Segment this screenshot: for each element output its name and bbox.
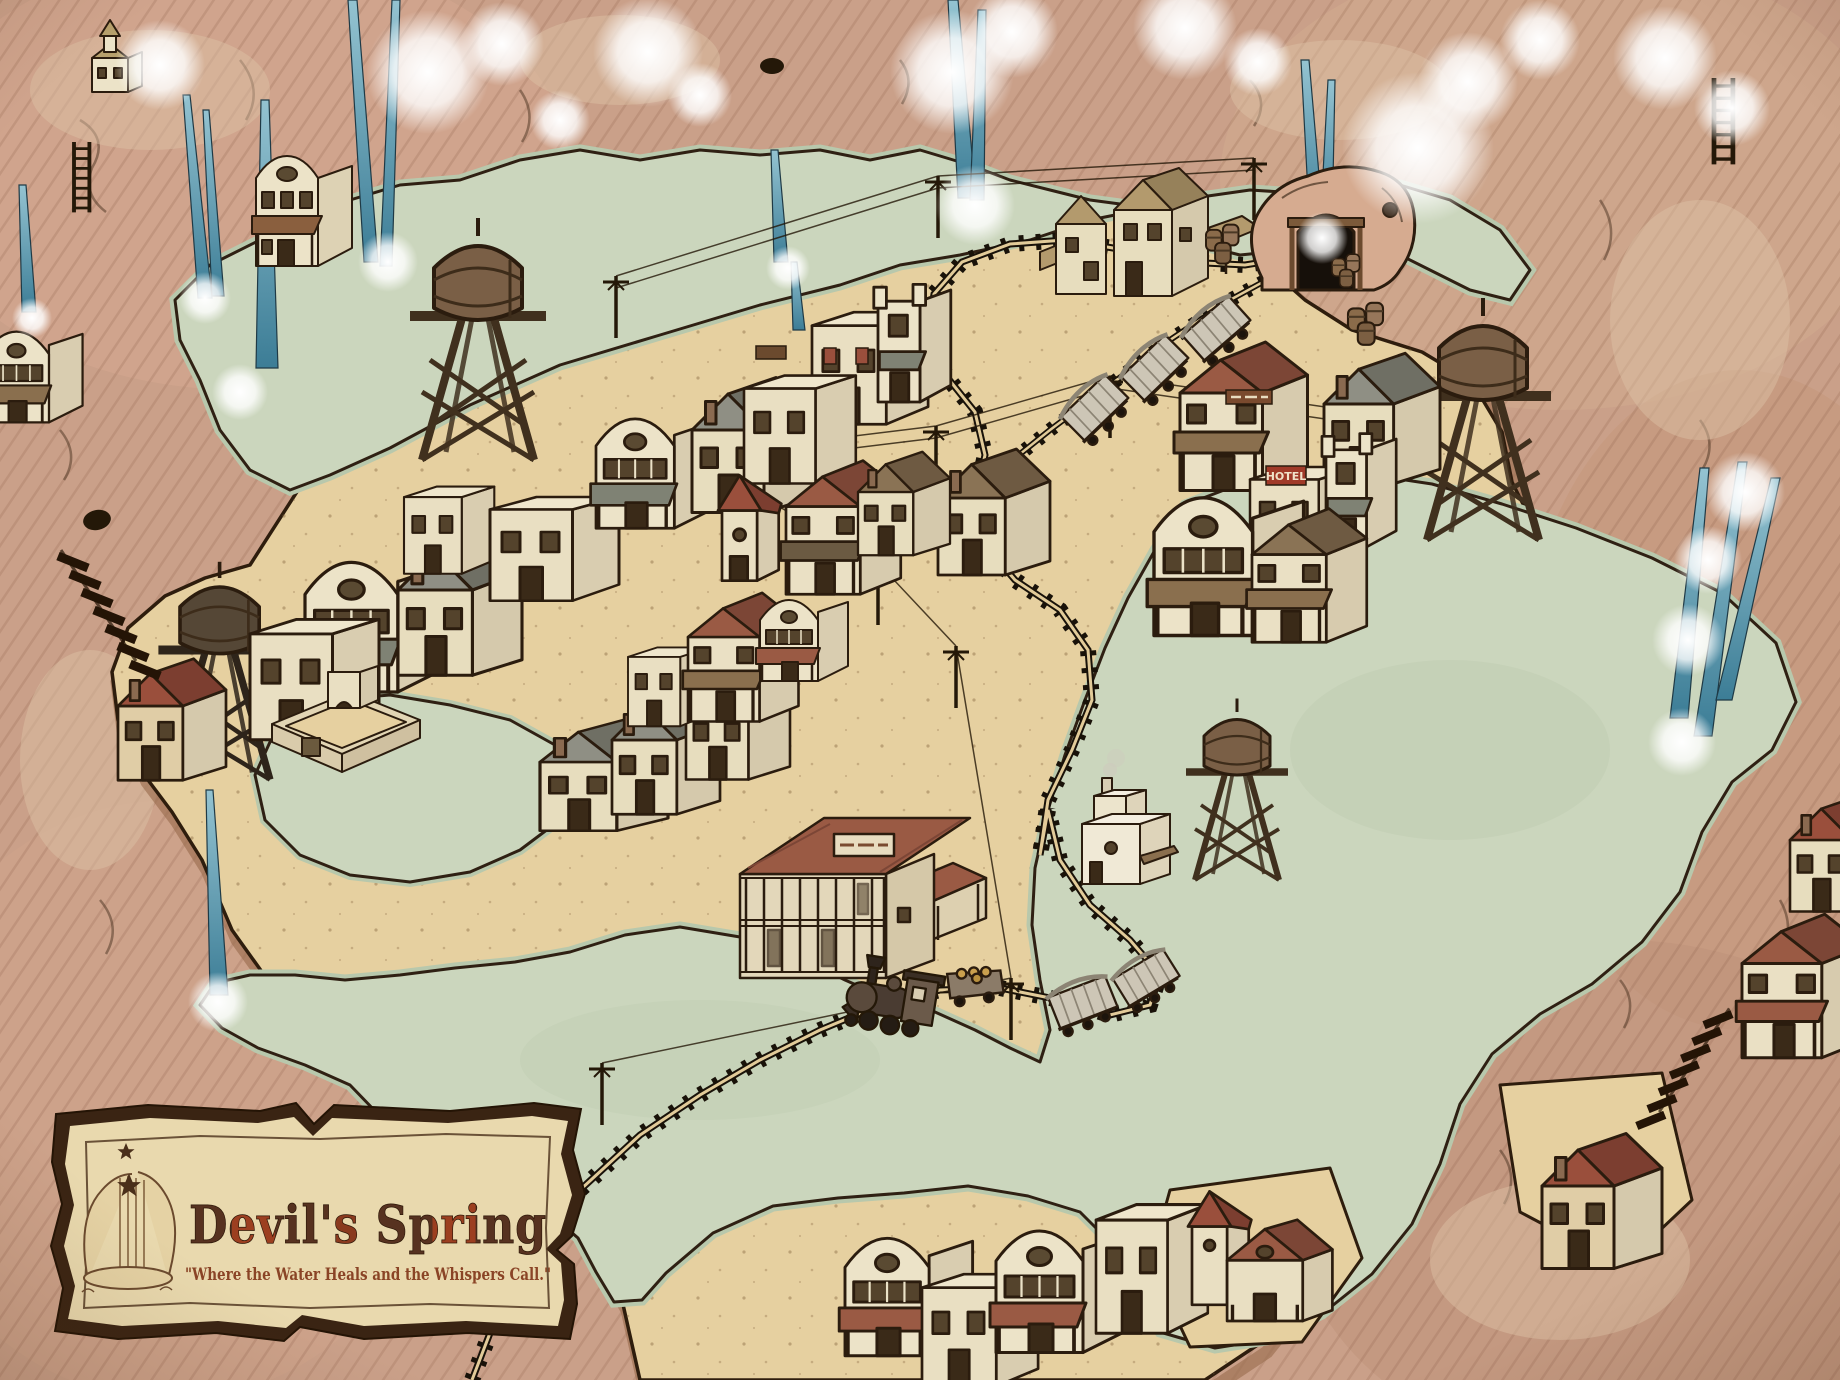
vignette-overlay: [0, 0, 1840, 1380]
devils-spring-map: HOTEL: [0, 0, 1840, 1380]
